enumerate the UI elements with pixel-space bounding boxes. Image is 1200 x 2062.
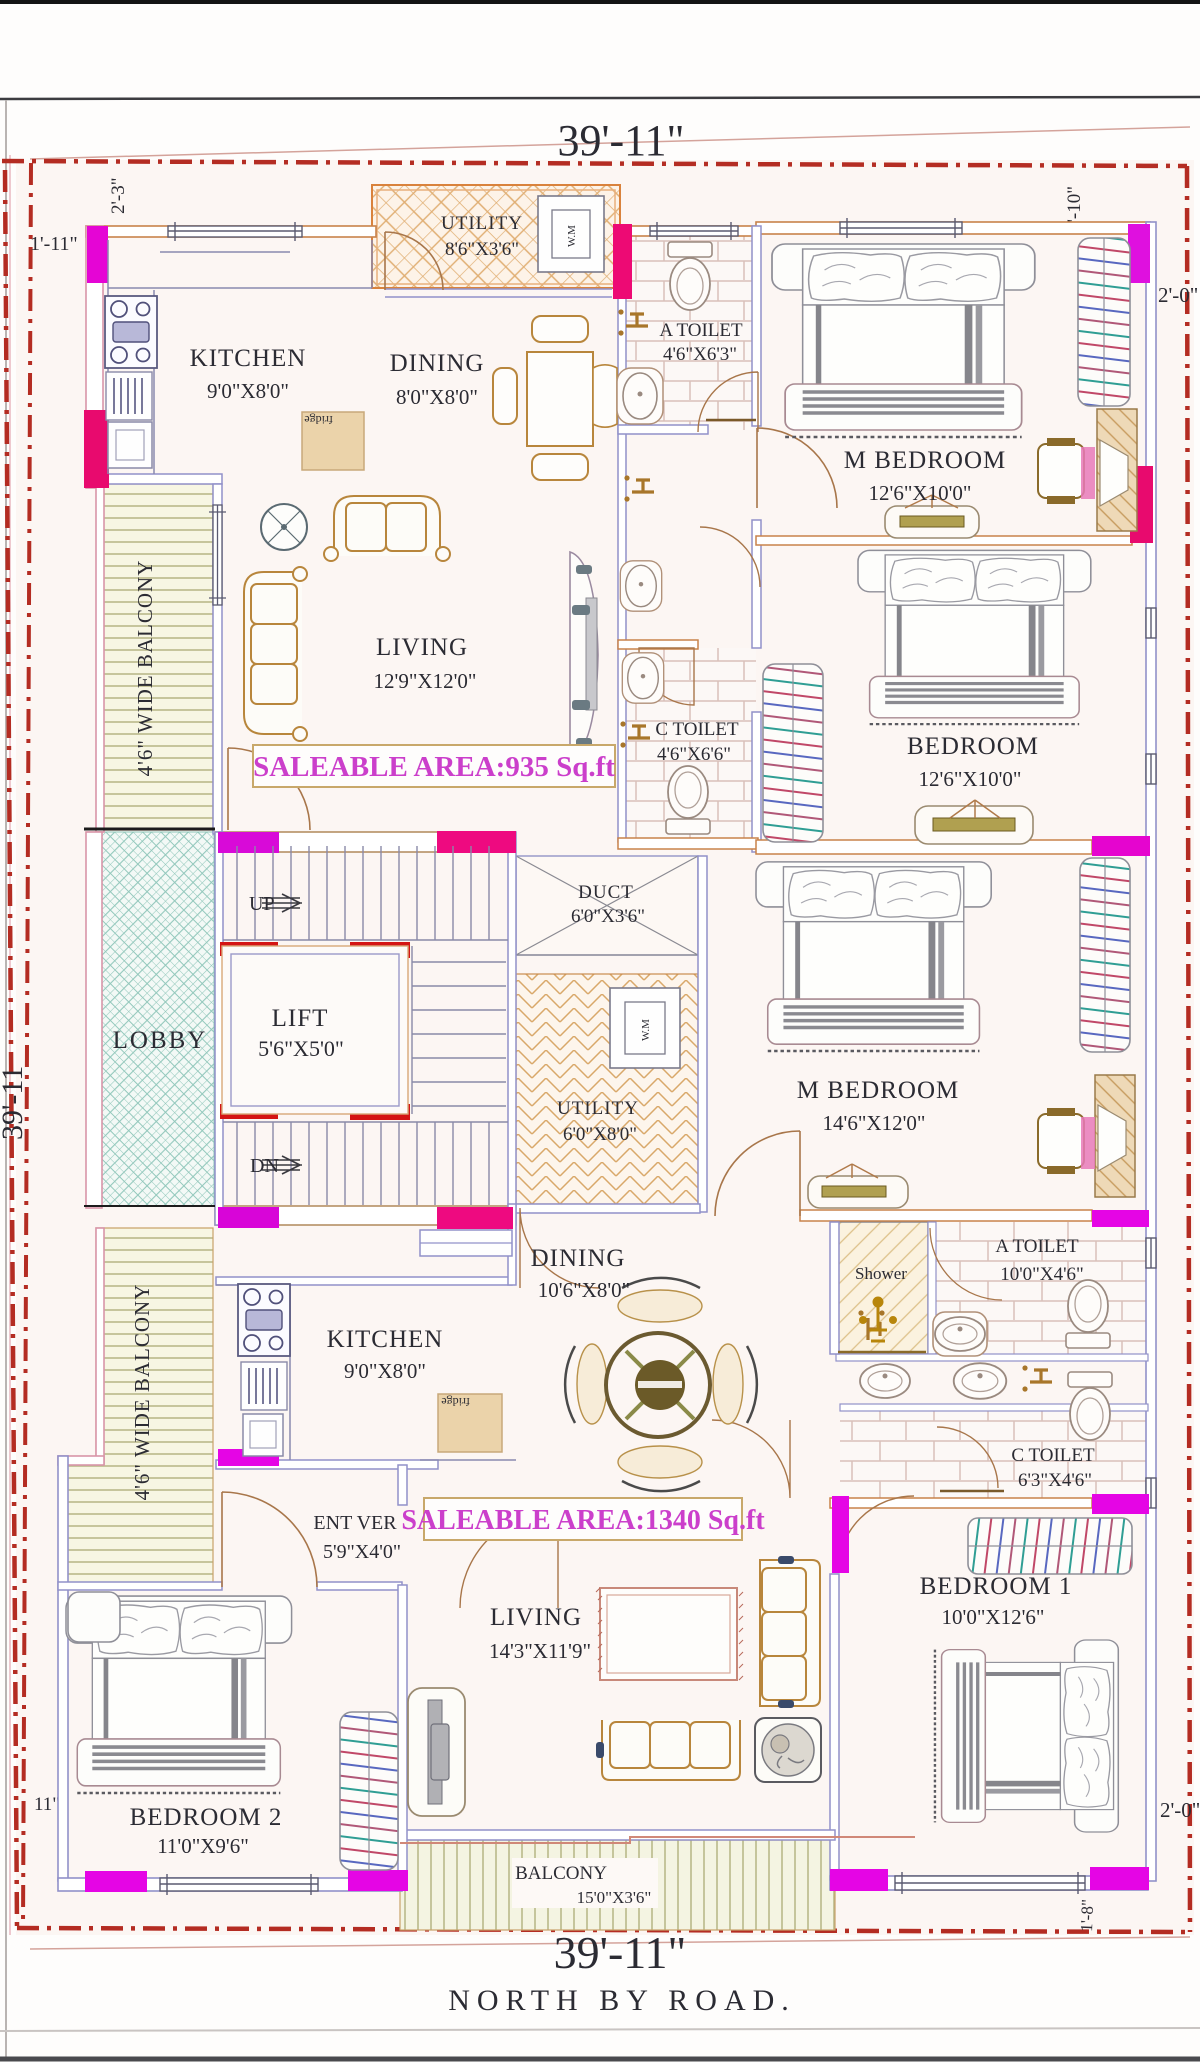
svg-text:UTILITY: UTILITY	[557, 1098, 639, 1119]
svg-text:10'0"X4'6": 10'0"X4'6"	[1000, 1264, 1084, 1285]
svg-text:15'0"X3'6": 15'0"X3'6"	[577, 1888, 652, 1907]
svg-text:2'-0": 2'-0"	[1160, 1798, 1200, 1822]
svg-text:A TOILET: A TOILET	[995, 1236, 1079, 1257]
svg-text:LIFT: LIFT	[272, 1005, 329, 1032]
svg-text:C TOILET: C TOILET	[655, 719, 739, 740]
svg-text:4'6"X6'3": 4'6"X6'3"	[663, 344, 737, 365]
svg-text:M BEDROOM: M BEDROOM	[797, 1077, 960, 1104]
svg-text:DINING: DINING	[531, 1245, 626, 1272]
svg-text:W.M: W.M	[566, 225, 578, 247]
svg-text:39'-11: 39'-11	[0, 1066, 29, 1140]
svg-text:ENT VER: ENT VER	[313, 1512, 397, 1534]
svg-text:4'6"X6'6": 4'6"X6'6"	[657, 744, 731, 765]
svg-text:6'0"X3'6": 6'0"X3'6"	[571, 906, 645, 927]
svg-text:BEDROOM: BEDROOM	[907, 733, 1039, 760]
svg-text:10'0"X12'6": 10'0"X12'6"	[942, 1605, 1045, 1629]
svg-text:5'9"X4'0": 5'9"X4'0"	[323, 1541, 401, 1563]
svg-text:BALCONY: BALCONY	[515, 1863, 607, 1884]
svg-text:39'-11": 39'-11"	[554, 1927, 687, 1978]
svg-text:9'0"X8'0": 9'0"X8'0"	[207, 379, 289, 403]
svg-text:6'3"X4'6": 6'3"X4'6"	[1018, 1470, 1092, 1491]
svg-text:14'6"X12'0": 14'6"X12'0"	[823, 1111, 926, 1135]
svg-text:DUCT: DUCT	[578, 882, 634, 903]
svg-text:UP: UP	[249, 893, 275, 915]
svg-text:2'-0": 2'-0"	[1158, 283, 1198, 307]
svg-text:fridge: fridge	[304, 413, 333, 427]
svg-text:11'0"X9'6": 11'0"X9'6"	[157, 1834, 249, 1858]
svg-text:Shower: Shower	[855, 1264, 907, 1283]
svg-text:1'-8": 1'-8"	[1077, 1899, 1097, 1932]
svg-text:39'-11": 39'-11"	[558, 116, 685, 165]
svg-text:LOBBY: LOBBY	[113, 1027, 208, 1054]
svg-text:SALEABLE AREA:935 Sq.ft: SALEABLE AREA:935 Sq.ft	[253, 751, 615, 783]
svg-text:2'-3": 2'-3"	[108, 177, 129, 214]
svg-text:9'0"X8'0": 9'0"X8'0"	[344, 1359, 426, 1383]
svg-text:M BEDROOM: M BEDROOM	[844, 447, 1007, 474]
svg-text:6'0"X8'0": 6'0"X8'0"	[563, 1124, 637, 1145]
svg-text:12'9"X12'0": 12'9"X12'0"	[374, 669, 477, 693]
svg-text:LIVING: LIVING	[376, 634, 468, 661]
svg-text:W.M: W.M	[640, 1019, 652, 1041]
svg-text:12'6"X10'0": 12'6"X10'0"	[919, 767, 1022, 791]
svg-text:A TOILET: A TOILET	[659, 320, 743, 341]
svg-text:11": 11"	[34, 1794, 60, 1815]
svg-text:BEDROOM 2: BEDROOM 2	[130, 1804, 283, 1831]
svg-text:10'6"X8'0": 10'6"X8'0"	[538, 1278, 630, 1302]
svg-text:fridge: fridge	[441, 1395, 470, 1409]
svg-text:DINING: DINING	[390, 350, 485, 377]
svg-text:SALEABLE AREA:1340 Sq.ft: SALEABLE AREA:1340 Sq.ft	[401, 1505, 765, 1536]
svg-text:4'6" WIDE BALCONY: 4'6" WIDE BALCONY	[130, 1284, 154, 1501]
svg-text:5'6"X5'0": 5'6"X5'0"	[258, 1036, 344, 1061]
svg-text:1'-11": 1'-11"	[30, 233, 78, 255]
svg-text:4'6" WIDE BALCONY: 4'6" WIDE BALCONY	[133, 560, 157, 777]
svg-text:KITCHEN: KITCHEN	[327, 1326, 444, 1353]
svg-text:LIVING: LIVING	[490, 1604, 582, 1631]
svg-text:C TOILET: C TOILET	[1011, 1445, 1095, 1466]
svg-text:UTILITY: UTILITY	[441, 213, 523, 234]
svg-text:KITCHEN: KITCHEN	[190, 345, 307, 372]
svg-text:BEDROOM 1: BEDROOM 1	[920, 1573, 1073, 1600]
svg-text:NORTH BY ROAD.: NORTH BY ROAD.	[448, 1984, 796, 2017]
svg-text:DN: DN	[250, 1155, 279, 1177]
svg-text:12'6"X10'0": 12'6"X10'0"	[869, 481, 972, 505]
svg-text:8'0"X8'0": 8'0"X8'0"	[396, 385, 478, 409]
svg-text:8'6"X3'6": 8'6"X3'6"	[445, 239, 519, 260]
svg-text:14'3"X11'9": 14'3"X11'9"	[489, 1639, 591, 1663]
